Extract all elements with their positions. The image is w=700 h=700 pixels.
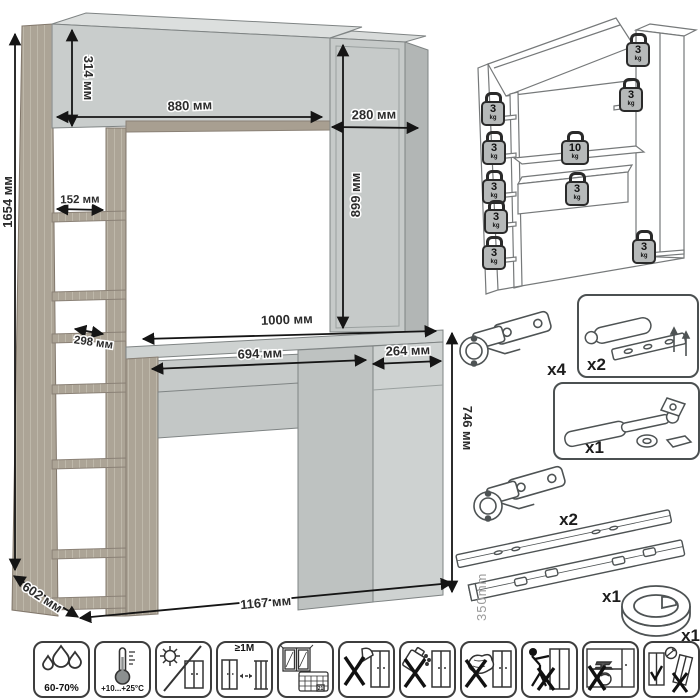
main-furniture-drawing: 1654 мм 314 мм 880 мм 280 мм 899 мм 152 …: [0, 0, 480, 648]
ventilate-room-icon: 21: [277, 641, 334, 698]
overloaded-shelf-icon: [584, 643, 637, 696]
dim-total-height: 1654 мм: [0, 176, 15, 228]
dim-total-width: 1167 мм: [240, 593, 292, 612]
hinge-qty: x4: [547, 360, 566, 380]
no-overloading-icon: [582, 641, 639, 698]
slide-length-label: 350mm: [474, 573, 489, 621]
humidity-label: 60-70%: [35, 684, 88, 694]
anchor-to-wall-icon: [643, 641, 700, 698]
pedestal-front: [373, 342, 443, 602]
hutch-bridge: [52, 13, 362, 132]
pedestal-side: [298, 346, 373, 610]
dim-desktop-width: 1000 мм: [261, 311, 313, 328]
temperature-label: +10...+25°C: [96, 684, 149, 694]
sun-cabinet-icon: [157, 643, 210, 696]
modesty-panel: [158, 383, 298, 438]
no-sharp-tools-icon: [338, 641, 395, 698]
hardware-gas-lift-x1: x1: [553, 382, 700, 460]
gas-lift-qty: x1: [585, 438, 604, 458]
humidity-icon: 60-70%: [33, 641, 90, 698]
dim-shelf-depth-upper: 152 мм: [60, 194, 100, 207]
no-abrasive-cleaning-icon: [460, 641, 517, 698]
keep-distance-from-heat-icon: ≥1M: [216, 641, 273, 698]
sponge-cabinet-icon: [462, 643, 515, 696]
dim-door-width: 264 мм: [385, 342, 430, 359]
damper-qty: x2: [587, 355, 606, 375]
hardware-grommet-x1: x1: [616, 580, 700, 646]
dim-drawer-width: 694 мм: [237, 345, 282, 362]
pouring-canister-icon: [401, 643, 454, 696]
no-direct-sunlight-icon: [155, 641, 212, 698]
dim-desk-height: 746 мм: [460, 406, 475, 451]
desk-left-leg: [126, 357, 158, 616]
top-right-cabinet: [330, 31, 428, 334]
calendar-day-label: 21: [318, 686, 324, 692]
no-dragging-icon: [521, 641, 578, 698]
window-calendar-icon: 21: [279, 643, 332, 696]
load-capacity-diagram: [458, 6, 700, 296]
hardware-hinge-x4: x4: [452, 295, 570, 380]
dim-top-cabinet-width: 280 мм: [352, 107, 397, 123]
hardware-damper-x2: x2: [577, 294, 699, 378]
person-pushing-cabinet-icon: [523, 643, 576, 696]
desk: [126, 330, 443, 616]
dim-top-cabinet-height: 899 мм: [348, 173, 363, 218]
temperature-icon: +10...+25°C: [94, 641, 151, 698]
gas-lift-icon: [555, 384, 694, 454]
care-icons-row: 60-70% +10...+25°C: [33, 641, 700, 698]
no-aggressive-liquids-icon: [399, 641, 456, 698]
distance-label: ≥1M: [218, 644, 271, 654]
axe-cabinet-icon: [340, 643, 393, 696]
dim-hutch-width: 880 мм: [167, 97, 212, 114]
wall-anchoring-icon: [645, 643, 698, 696]
dim-hutch-height: 314 мм: [81, 56, 96, 101]
